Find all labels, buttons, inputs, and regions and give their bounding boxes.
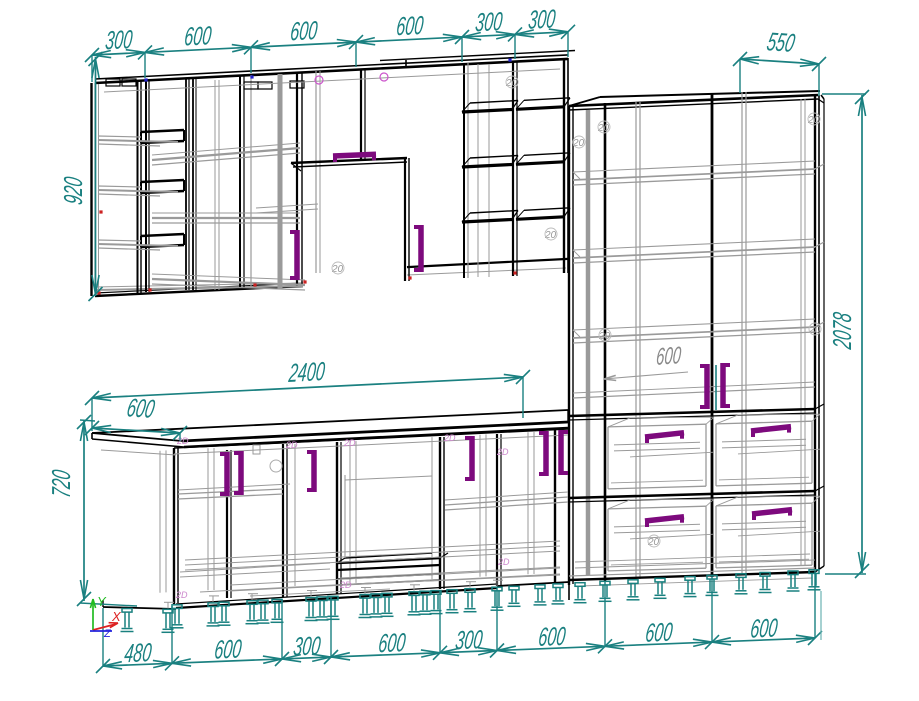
svg-text:2D: 2D bbox=[339, 580, 352, 590]
svg-text:600: 600 bbox=[183, 20, 213, 51]
svg-text:2078: 2078 bbox=[827, 310, 857, 351]
svg-text:600: 600 bbox=[377, 627, 407, 658]
svg-text:300: 300 bbox=[474, 6, 504, 37]
svg-text:Z: Z bbox=[103, 628, 112, 640]
svg-text:300: 300 bbox=[527, 3, 557, 34]
svg-text:2400: 2400 bbox=[287, 356, 327, 388]
svg-text:2D: 2D bbox=[343, 438, 356, 448]
svg-text:600: 600 bbox=[213, 634, 243, 665]
svg-text:X: X bbox=[111, 609, 122, 624]
svg-text:920: 920 bbox=[58, 175, 88, 206]
svg-text:600: 600 bbox=[537, 621, 567, 652]
svg-text:Y: Y bbox=[97, 594, 107, 609]
svg-text:300: 300 bbox=[104, 24, 134, 55]
svg-text:2D: 2D bbox=[176, 436, 189, 446]
svg-text:2D: 2D bbox=[443, 433, 456, 443]
svg-text:600: 600 bbox=[395, 10, 425, 41]
svg-text:720: 720 bbox=[46, 468, 76, 499]
svg-text:600: 600 bbox=[749, 613, 779, 644]
svg-text:2D: 2D bbox=[285, 440, 298, 450]
svg-text:600: 600 bbox=[289, 15, 319, 46]
svg-text:2D: 2D bbox=[497, 557, 510, 567]
svg-text:2D: 2D bbox=[496, 447, 509, 457]
svg-text:300: 300 bbox=[292, 631, 322, 662]
svg-text:600: 600 bbox=[644, 617, 674, 648]
svg-text:2D: 2D bbox=[175, 590, 188, 600]
svg-text:480: 480 bbox=[123, 637, 153, 668]
svg-text:600: 600 bbox=[655, 343, 683, 371]
svg-text:300: 300 bbox=[454, 624, 484, 655]
